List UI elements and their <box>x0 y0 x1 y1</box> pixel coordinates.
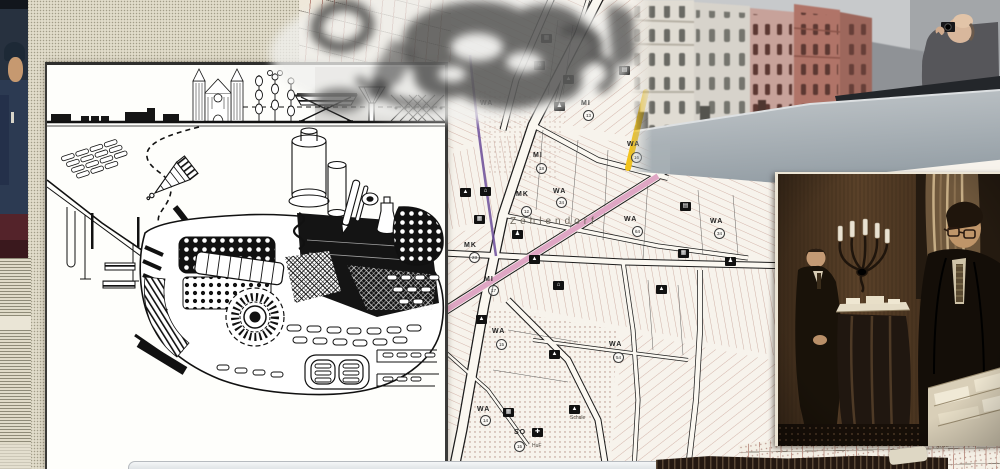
district-label: Zehlendorf <box>510 216 598 227</box>
tunnel-machine-illustration <box>47 65 445 467</box>
hanging-loop-drawing <box>67 207 75 267</box>
map-icon-marker: ♟ <box>512 230 523 239</box>
worker-face <box>8 57 23 82</box>
map-icon-marker: ⌂ <box>553 281 564 290</box>
worker-photo-strip <box>0 0 28 258</box>
dotted-lobe <box>393 207 443 266</box>
cathedral-drawing <box>193 69 243 122</box>
photo-dark-edge <box>0 0 28 9</box>
map-icon-marker: ▲ <box>476 315 487 324</box>
bottom-panel-edge <box>128 461 678 469</box>
map-icon-marker: ▤ <box>619 66 630 75</box>
ribbed-light-band <box>0 316 31 330</box>
map-icon-marker: ▦ <box>474 215 485 224</box>
map-icon-marker: ♟ <box>725 257 736 266</box>
photo-shadow-area <box>0 240 28 258</box>
peg-left <box>105 263 135 270</box>
map-icon-marker: ⌂ <box>534 61 545 70</box>
worker-badge <box>11 112 14 123</box>
segment-stack-drawing <box>61 137 130 181</box>
street-model-photo <box>630 0 1000 188</box>
bubble-stacks <box>256 71 295 122</box>
worker-arm <box>0 95 9 185</box>
illustration-panel <box>45 62 448 469</box>
ribbed-light-band-2 <box>0 444 31 469</box>
map-icon-marker: ▲ <box>563 75 574 84</box>
map-icon-marker: ▲ <box>529 255 540 264</box>
map-icon-marker: ⌂ <box>480 187 491 196</box>
map-icon-marker: ▲ <box>569 405 580 414</box>
map-icon-marker: ▦ <box>678 249 689 258</box>
train-silhouette <box>51 108 179 121</box>
map-icon-marker: ▦ <box>503 408 514 417</box>
cutter-wheel-drawing <box>226 288 284 346</box>
collage-canvas: MIWAWAMIMKWAMKMIWAWAWAWAWASO SchuleHuF 1… <box>0 0 1000 469</box>
map-icon-marker: ▦ <box>541 34 552 43</box>
map-icon-marker: ▲ <box>460 188 471 197</box>
ribbed-texture-strip <box>0 258 31 469</box>
sepia-presentation-photo <box>775 172 1000 446</box>
map-icon-marker: ✚ <box>532 428 543 437</box>
map-icon-marker: ♟ <box>554 102 565 111</box>
map-icon-marker: ▲ <box>549 350 560 359</box>
peg-left-2 <box>103 281 135 288</box>
map-top-fragment <box>299 0 451 62</box>
map-icon-marker: ▤ <box>680 202 691 211</box>
map-icon-marker: ▲ <box>656 285 667 294</box>
